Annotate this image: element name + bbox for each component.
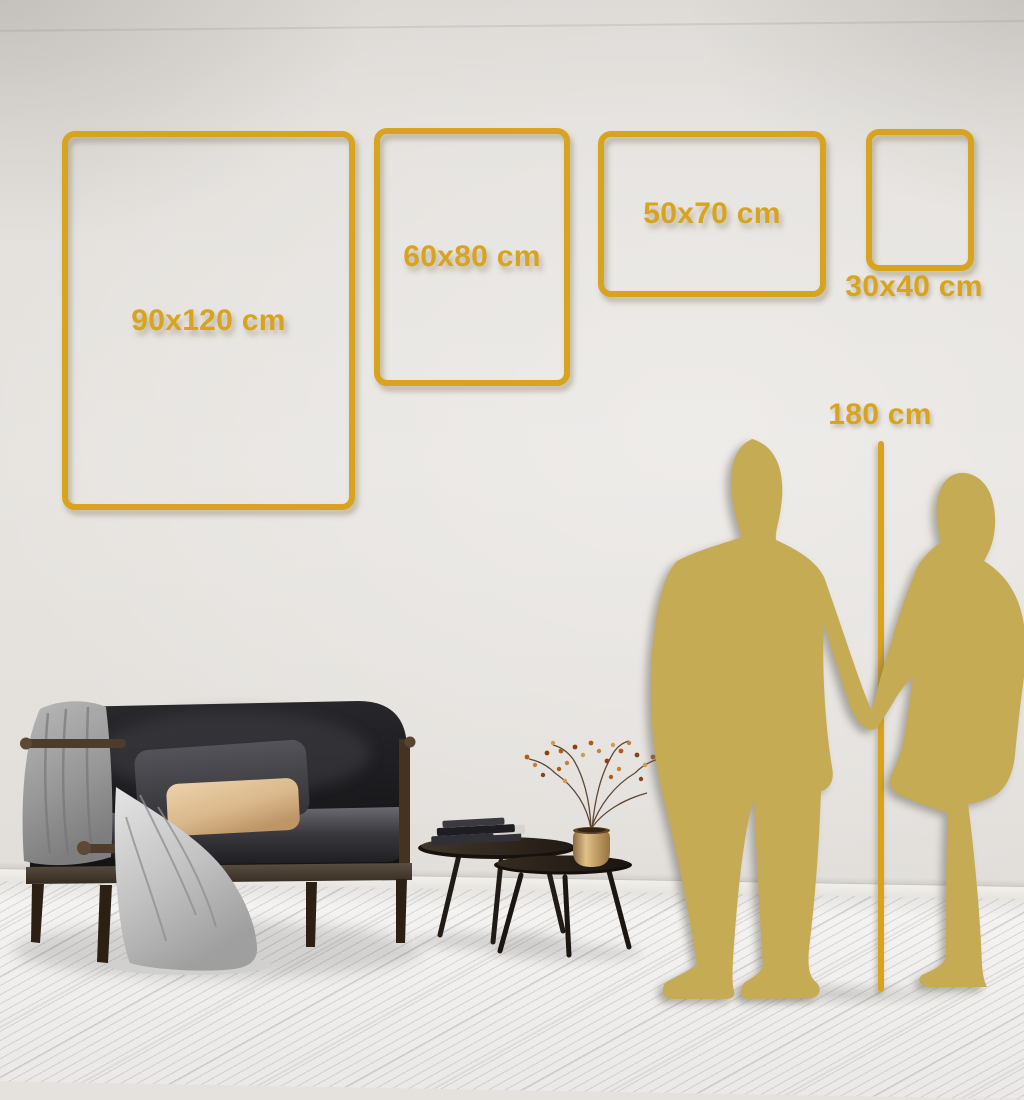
size-label-60x80: 60x80 cm	[403, 242, 541, 272]
size-label-50x70: 50x70 cm	[643, 199, 781, 229]
couple-silhouette	[630, 425, 1024, 1010]
size-label-90x120: 90x120 cm	[131, 306, 286, 336]
arm-top-rail	[20, 738, 126, 750]
beige-pillow	[166, 778, 301, 837]
size-frame-30x40	[866, 129, 974, 271]
size-label-30x40: 30x40 cm	[828, 272, 1000, 302]
gold-vase	[573, 827, 610, 867]
book-stack	[430, 817, 525, 846]
sofa	[0, 695, 440, 1025]
right-arm-post	[399, 737, 416, 868]
woman-silhouette	[869, 473, 1024, 987]
size-frame-60x80: 60x80 cm	[374, 128, 570, 386]
man-silhouette	[651, 439, 878, 999]
size-frame-90x120: 90x120 cm	[62, 131, 355, 510]
small-table-surface	[497, 856, 629, 872]
size-frame-50x70: 50x70 cm	[598, 131, 826, 297]
